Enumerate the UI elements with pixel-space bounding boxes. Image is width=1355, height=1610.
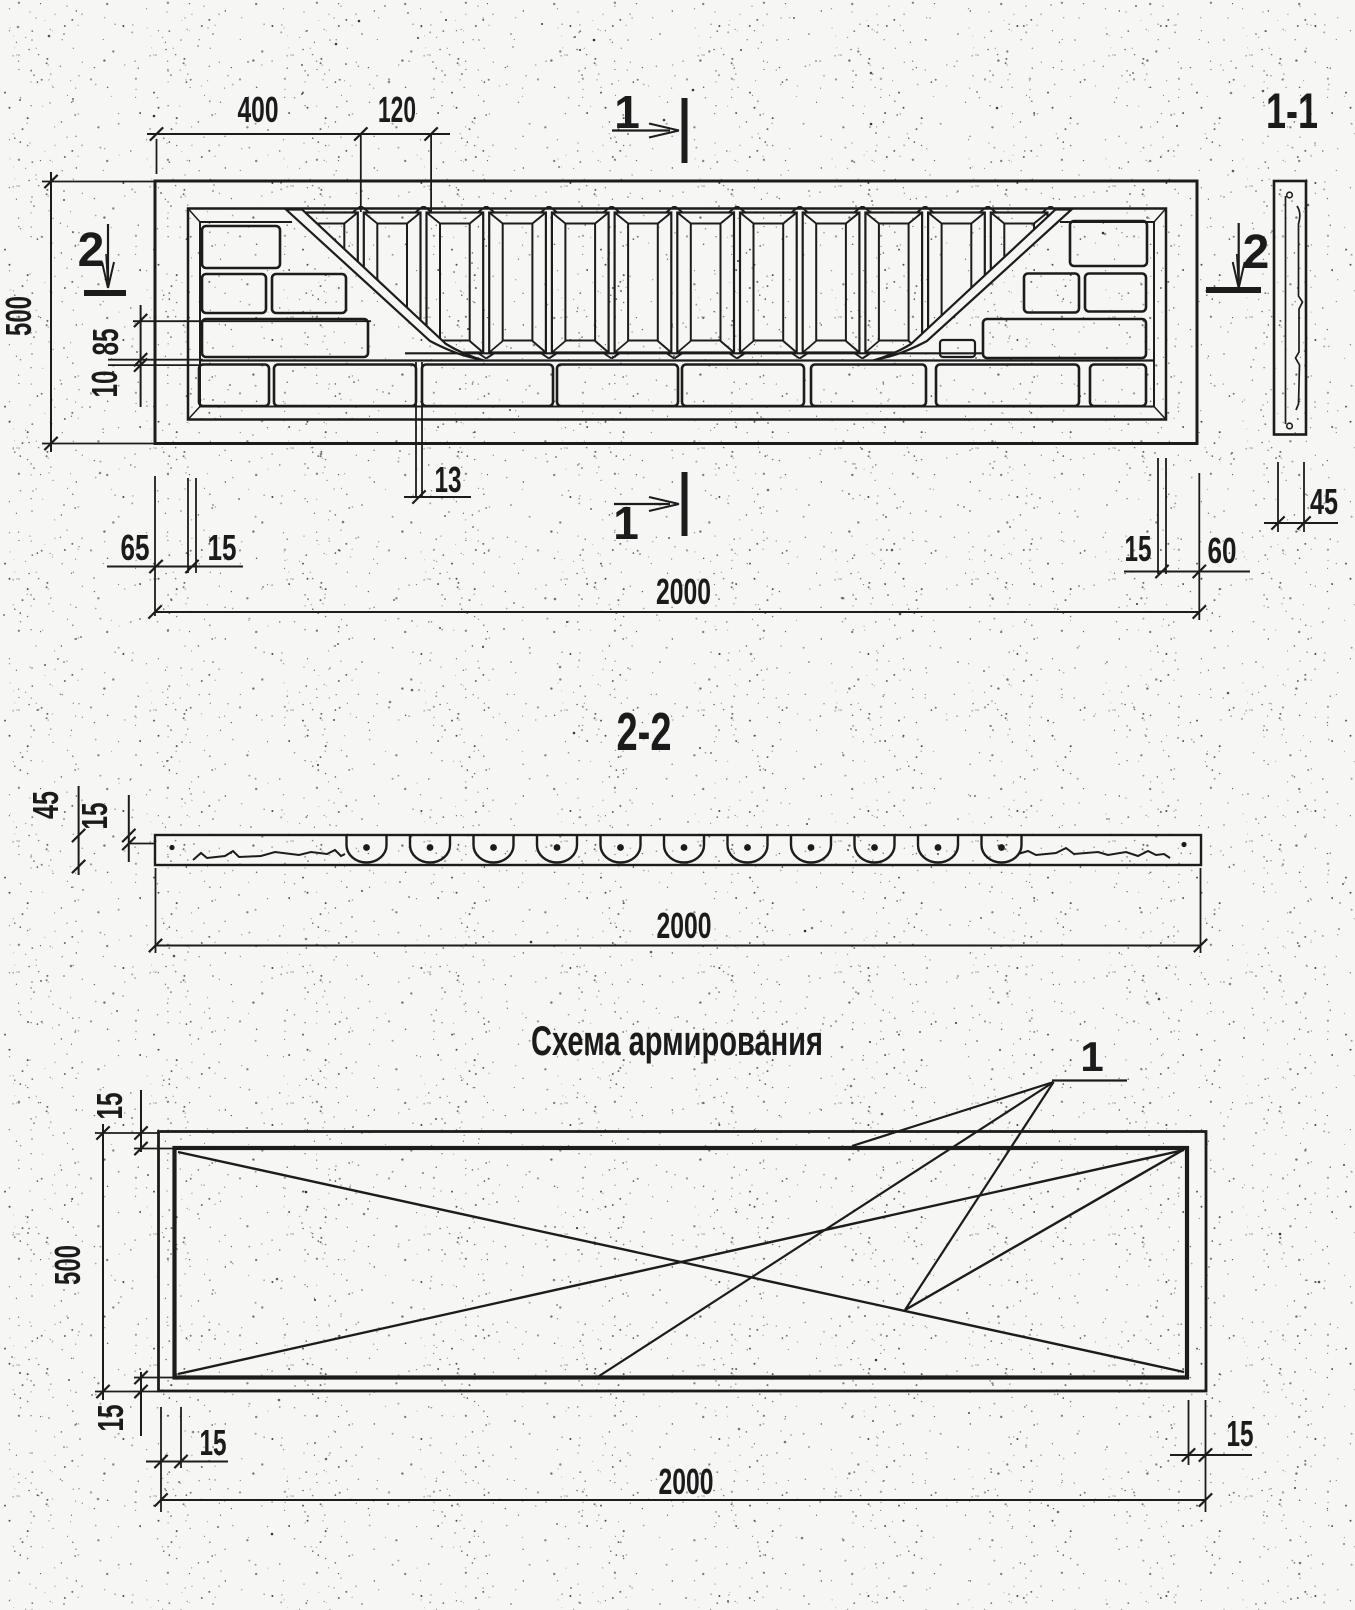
svg-text:15: 15 <box>208 527 237 568</box>
svg-text:13: 13 <box>435 459 462 500</box>
svg-text:500: 500 <box>0 296 39 336</box>
svg-text:15: 15 <box>1125 528 1152 569</box>
svg-text:2: 2 <box>78 224 105 277</box>
svg-text:2000: 2000 <box>659 1461 714 1502</box>
svg-text:60: 60 <box>1208 530 1237 571</box>
svg-text:1: 1 <box>1080 1033 1103 1080</box>
svg-text:15: 15 <box>74 803 115 830</box>
svg-text:2000: 2000 <box>656 571 711 612</box>
svg-text:15: 15 <box>200 1422 227 1463</box>
svg-text:15: 15 <box>1227 1413 1254 1454</box>
svg-text:15: 15 <box>89 1093 130 1120</box>
svg-text:1: 1 <box>613 497 639 549</box>
svg-text:400: 400 <box>238 89 279 130</box>
svg-text:85: 85 <box>85 329 126 356</box>
svg-text:120: 120 <box>378 89 416 130</box>
svg-text:65: 65 <box>121 527 150 568</box>
svg-text:2000: 2000 <box>657 905 712 946</box>
svg-text:45: 45 <box>25 791 66 819</box>
svg-text:45: 45 <box>1310 481 1338 522</box>
svg-text:Схема армирования: Схема армирования <box>531 1017 823 1064</box>
svg-text:15: 15 <box>90 1405 131 1432</box>
svg-text:10: 10 <box>84 371 125 398</box>
svg-text:2-2: 2-2 <box>617 702 672 762</box>
svg-text:500: 500 <box>47 1245 88 1285</box>
svg-text:2: 2 <box>1243 226 1270 279</box>
svg-text:1-1: 1-1 <box>1266 83 1318 139</box>
